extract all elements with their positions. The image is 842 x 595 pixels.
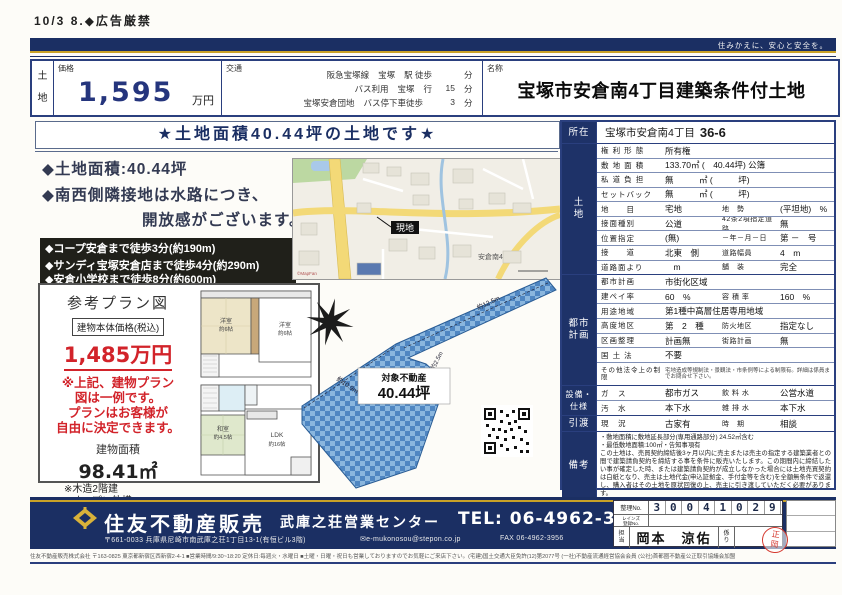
detail-value: 無 ㎡ ( 坪) [665, 174, 834, 186]
site-target-label: 対象不動産 [380, 372, 426, 383]
detail-key2: 飲 料 水 [722, 388, 780, 398]
registration-digit: 3 [649, 501, 666, 514]
detail-value: 市街化区域 [665, 276, 834, 288]
detail-key: 敷 地 面 積 [597, 160, 665, 171]
site-target-area: 40.44坪 [378, 385, 431, 402]
name-label: 名称 [487, 63, 503, 74]
detail-value: 第 2 種 [665, 320, 722, 332]
approval-cell [787, 516, 835, 531]
header-summary-table: 土 地 価格 1,595 万円 交通 阪急宝塚線 宝塚 駅 徒歩 分 バス利用 … [30, 59, 840, 117]
sumitomo-logo-icon [72, 507, 98, 531]
access-stop: バス停下車徒歩 [363, 97, 423, 109]
company-name: 住友不動産販売 [104, 508, 265, 537]
room-1f-2-name: LDK [271, 432, 284, 439]
building-area: 98.41㎡ [42, 457, 194, 484]
detail-key: 建ペイ率 [597, 291, 665, 302]
remarks-line-1: ・敷地面積に敷地延長部分(専用通路部分) 24.52㎡含む [600, 434, 831, 442]
detail-value: 計画無 [665, 335, 722, 347]
compass-icon [302, 294, 359, 351]
staff-name: 岡本 涼佑 [630, 527, 719, 548]
section-equipment: 設備・ 仕様 [562, 386, 597, 415]
approval-cell [787, 501, 835, 516]
building-price-label: 建物本体価格(税込) [72, 318, 164, 336]
detail-value: 不要 [665, 349, 834, 361]
checker-label: 係 り [719, 527, 735, 548]
detail-key2: 防火地区 [722, 321, 780, 331]
access-line: バス利用 [354, 83, 388, 95]
price-value: 1,595 [78, 77, 173, 108]
approval-stamp-box [786, 500, 836, 547]
feature-line-3: 開放感がございます。 [142, 208, 305, 230]
registration-digit: 1 [715, 501, 732, 514]
detail-key: 接面種別 [597, 218, 665, 229]
detail-value: 宅地 [665, 203, 722, 215]
registration-number-label: 整理No. [614, 501, 649, 514]
detail-key2: 時 期 [722, 419, 780, 429]
detail-value: 所有権 [665, 145, 834, 157]
detail-value: 133.70㎡ ( 40.44坪) 公簿 [665, 159, 834, 171]
plan-sub-note-1: ※木造2階建 [64, 484, 194, 496]
detail-value2: 相談 [780, 418, 834, 430]
detail-value2: (平坦地) % [780, 203, 834, 215]
staff-label: 担 当 [614, 527, 630, 548]
approval-cell [787, 532, 835, 546]
detail-value: 都市ガス [665, 387, 722, 399]
detail-value: 本下水 [665, 402, 722, 414]
legal-fine-print: 住友不動産販売株式会社 〒163-0825 東京都新宿区西新宿2-4-1 ■営業… [30, 552, 836, 560]
floorplan-drawing: 洋室 約6帖 洋室 約6帖 和室 約4.5帖 LDK 約16帖 [195, 289, 317, 477]
detail-value2: 本下水 [780, 402, 834, 414]
flyer-page: 10/3 8.◆広告厳禁 住みかえに、安心と安全を。 土 地 価格 1,595 … [0, 0, 842, 595]
detail-value2: 無 [780, 335, 834, 347]
room-1f-1-name: 和室 [217, 425, 229, 433]
detail-key2: 地 勢 [722, 204, 780, 214]
detail-key: 区画整理 [597, 335, 665, 346]
detail-value2: 指定なし [780, 320, 834, 332]
access-minutes: 3 [441, 97, 455, 109]
price-cell: 価格 1,595 万円 [54, 61, 222, 115]
site-plan: 約12.5m 約2.5m 約10.9m 対象不動産 40.44坪 [300, 276, 560, 490]
registration-digit: 9 [765, 501, 782, 514]
bottom-rule [30, 562, 836, 564]
restrictions-key: その他法令上の制限 [597, 367, 665, 381]
detail-value2: 第 － 号 [780, 232, 834, 244]
map-district-label: 安倉南4 [478, 252, 503, 261]
access-unit: 分 [464, 83, 476, 95]
access-stop: 宝塚 [378, 69, 395, 81]
detail-key2: 舗 装 [722, 262, 780, 272]
access-row: 宝塚安倉団地 バス停下車徒歩 3 分 [282, 97, 476, 109]
registration-digit: 2 [748, 501, 765, 514]
property-name: 宝塚市安倉南4丁目建築条件付土地 [489, 77, 834, 103]
access-unit: 分 [464, 97, 476, 109]
access-unit: 分 [464, 69, 476, 81]
detail-value: 60 % [665, 291, 722, 303]
detail-key: 国 土 法 [597, 350, 665, 361]
price-label: 価格 [58, 63, 74, 74]
detail-key: 都市計画 [597, 276, 665, 287]
detail-key2: 容 積 率 [722, 292, 780, 302]
room-2f-1-name: 洋室 [220, 317, 232, 325]
banner-divider [35, 151, 558, 152]
detail-value2: 公営水道 [780, 387, 834, 399]
detail-value2: 完全 [780, 261, 834, 273]
section-remarks: 備考 [562, 432, 597, 500]
detail-value: 公道 [665, 218, 722, 230]
registration-digit: 0 [666, 501, 683, 514]
detail-key: 道路面より [597, 262, 665, 273]
reference-plan-box: 参考プラン図 建物本体価格(税込) 1,485万円 ※上記、建物プラン 図は一例… [38, 283, 320, 483]
room-2f-1-size: 約6帖 [219, 325, 234, 333]
access-minutes: 15 [441, 83, 455, 95]
room-1f-1-size: 約4.5帖 [214, 433, 233, 441]
access-label: 交通 [226, 63, 242, 74]
detail-key2: 道路幅員 [722, 248, 780, 258]
room-2f-2-size: 約6帖 [278, 329, 293, 337]
top-banner-rule [30, 56, 836, 57]
detail-key: 現 況 [597, 418, 665, 429]
brand-tagline: 住みかえに、安心と安全を。 [718, 40, 828, 51]
office-address: 〒661-0033 兵庫県尼崎市南武庫之荘1丁目13-1(有恒ビル3階) [104, 535, 306, 545]
registration-box: 整理No. 3 0 0 4 1 0 2 9 レインズ 登録No. 担 当 岡本 … [613, 500, 783, 547]
building-area-label: 建物面積 [42, 441, 194, 457]
highlight-line-2: ◆サンディ宝塚安倉店まで徒歩4分(約290m) [45, 259, 291, 273]
access-row: 阪急宝塚線 宝塚 駅 徒歩 分 [282, 69, 476, 81]
detail-key: 権 利 形 態 [597, 145, 665, 156]
top-banner: 住みかえに、安心と安全を。 [30, 38, 836, 53]
plan-note: ※上記、建物プラン 図は一例です。 プランはお客様が 自由に決定できます。 [42, 376, 194, 436]
remarks-body: この土地は、売買契約締結後3ヶ月以内に売主または売主の指定する建築業者との間で建… [600, 450, 831, 498]
section-city-planning: 都市 計画 [562, 275, 597, 385]
section-land: 土 地 [562, 144, 597, 274]
building-price: 1,485万円 [64, 339, 172, 371]
location-map: 現地 安倉南4 ©MapFan [292, 158, 561, 280]
detail-key2: －年－月－日 [722, 233, 780, 243]
remarks-line-2: ・最低敷地面積:100㎡・告知事項有 [600, 442, 831, 450]
detail-value: 古家有 [665, 418, 722, 430]
location-lot: 36-6 [695, 125, 726, 140]
restrictions-value: 宅地造成等規制法・景観法・市条例等による制限有。詳細は係員までお問合せ下さい。 [665, 368, 834, 381]
access-mode: 行 [423, 83, 432, 95]
feature-line-1: ◆土地面積:40.44坪 [42, 157, 187, 179]
access-stop: 宝塚 [397, 83, 414, 95]
detail-key: 私 道 負 担 [597, 174, 665, 185]
price-unit: 万円 [192, 92, 214, 108]
detail-key2: 街路計画 [722, 336, 780, 346]
office-name: 武庫之荘営業センター [280, 512, 440, 532]
detail-key: 用途地域 [597, 306, 665, 317]
qr-code [481, 405, 533, 457]
detail-value2: 無 [780, 218, 834, 230]
detail-key: 接 道 [597, 247, 665, 258]
location-city: 宝塚市安倉南4丁目 [597, 125, 695, 140]
registration-digit: 0 [682, 501, 699, 514]
detail-value: m [665, 261, 722, 273]
access-mode: 駅 徒歩 [404, 69, 432, 81]
detail-key: 位置指定 [597, 233, 665, 244]
section-handover: 引渡 [562, 416, 597, 431]
category-label: 土 地 [32, 61, 54, 115]
map-site-label: 現地 [396, 222, 414, 233]
office-email: ✉e-mukonosou@stepon.co.jp [360, 535, 461, 543]
access-row: バス利用 宝塚 行 15 分 [282, 83, 476, 95]
detail-value: (無) [665, 232, 722, 244]
detail-key: 汚 水 [597, 403, 665, 414]
access-line: 阪急宝塚線 [327, 69, 370, 81]
detail-value2: 160 % [780, 291, 834, 303]
detail-key2: 42条2項指定道路 [722, 217, 780, 232]
detail-key: 高度地区 [597, 320, 665, 331]
access-minutes [441, 69, 455, 81]
registration-digit: 4 [699, 501, 716, 514]
property-details-table: 所在 宝塚市安倉南4丁目 36-6 土 地 権 利 形 態所有権 敷 地 面 積… [560, 120, 836, 490]
room-2f-2-name: 洋室 [279, 321, 291, 329]
detail-value: 無 ㎡ ( 坪) [665, 188, 834, 200]
fax-number: FAX 06-4962-3956 [500, 535, 564, 542]
detail-key: ガ ス [597, 388, 665, 399]
room-1f-2-size: 約16帖 [268, 440, 286, 448]
corner-note: 10/3 8.◆広告厳禁 [34, 12, 152, 29]
highlight-box-1: ◆コープ安倉まで徒歩3分(約190m) [40, 238, 296, 258]
section-location: 所在 [562, 122, 597, 143]
plan-text-column: 参考プラン図 建物本体価格(税込) 1,485万円 ※上記、建物プラン 図は一例… [42, 285, 194, 481]
headline-banner: ★土地面積40.44坪の土地です★ [35, 121, 560, 149]
property-name-cell: 名称 宝塚市安倉南4丁目建築条件付土地 [483, 61, 838, 115]
plan-title: 参考プラン図 [42, 292, 194, 313]
access-line: 宝塚安倉団地 [303, 97, 354, 109]
detail-value2: 4 m [780, 247, 834, 259]
detail-key2: 雑 排 水 [722, 403, 780, 413]
registration-digit: 0 [732, 501, 749, 514]
detail-value: 第1種中高層住居専用地域 [665, 305, 834, 317]
detail-key: セットバック [597, 189, 665, 200]
reins-number-label: レインズ 登録No. [614, 515, 649, 526]
access-cell: 交通 阪急宝塚線 宝塚 駅 徒歩 分 バス利用 宝塚 行 15 分 宝塚安倉団地… [222, 61, 483, 115]
detail-value: 北東 側 [665, 247, 722, 259]
feature-line-2: ◆南西側隣接地は水路につき、 [42, 183, 268, 205]
detail-key: 地 目 [597, 204, 665, 215]
